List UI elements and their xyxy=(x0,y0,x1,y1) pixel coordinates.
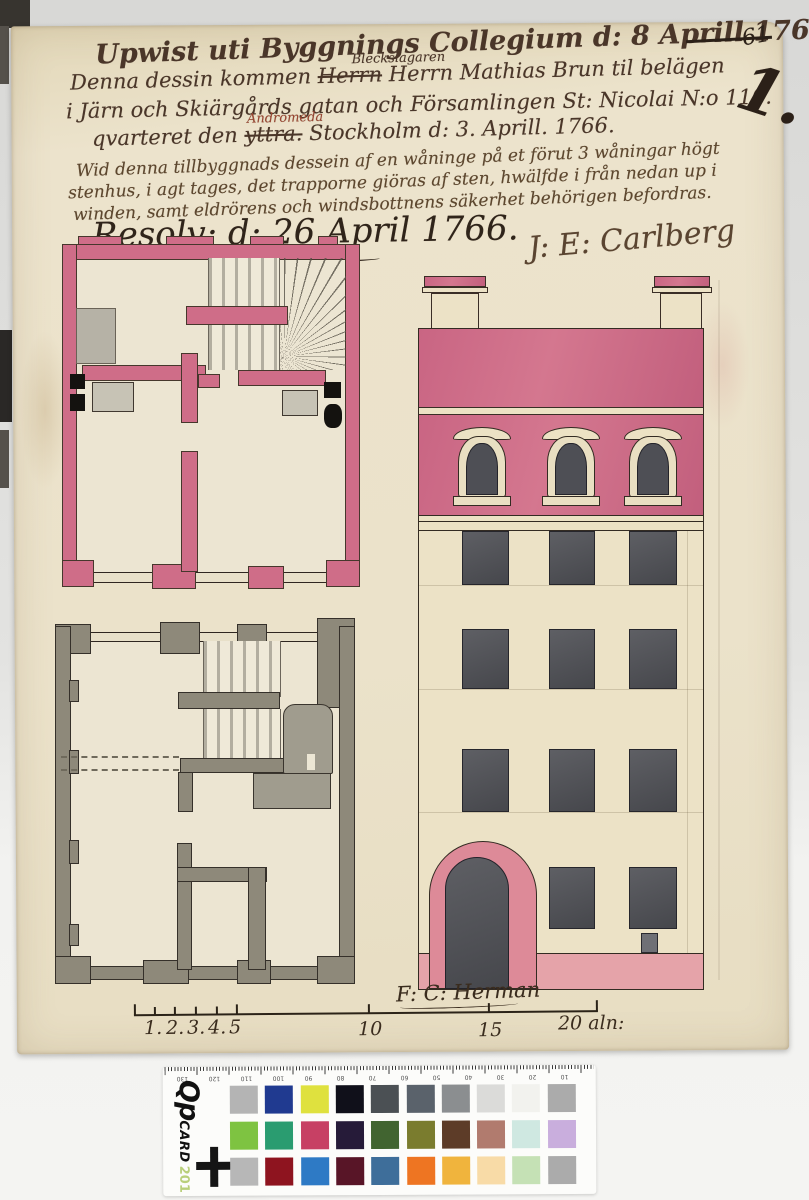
arched-window xyxy=(547,427,595,509)
line2-inserted-word: Bleckslagaren xyxy=(351,50,445,67)
chimney-cap xyxy=(654,276,710,287)
tile-stove xyxy=(282,390,318,416)
scale-baseline xyxy=(134,1010,598,1016)
facade-elevation xyxy=(412,276,708,988)
pilaster xyxy=(248,566,284,589)
exterior-wall xyxy=(345,244,360,576)
stair-flight xyxy=(203,641,281,697)
scale-tick xyxy=(368,1004,370,1013)
arched-window xyxy=(458,427,506,509)
cornice xyxy=(419,515,703,522)
qpcard-patch xyxy=(477,1120,505,1148)
qpcard-patch xyxy=(477,1084,505,1112)
scale-tick xyxy=(195,1007,197,1015)
facade-wall-line xyxy=(66,572,356,583)
window xyxy=(549,749,595,812)
qpcard-patch xyxy=(406,1085,434,1113)
flue-mark xyxy=(324,382,341,398)
scan-edge-mark xyxy=(0,26,9,84)
flue-mark xyxy=(70,394,85,411)
qpcard-patch xyxy=(230,1158,258,1186)
stair-flight xyxy=(203,709,281,759)
guide-line xyxy=(687,531,688,989)
scale-tick xyxy=(596,1000,598,1011)
window xyxy=(462,749,509,812)
window-sill xyxy=(453,496,511,506)
qpcard-patch xyxy=(265,1121,293,1149)
ruler-number: 20 xyxy=(529,1073,537,1080)
scale-tick xyxy=(154,1007,156,1015)
scale-label: 4. xyxy=(208,1016,226,1038)
window xyxy=(629,867,677,929)
pilaster xyxy=(317,956,355,984)
vaulted-chamber xyxy=(253,773,331,809)
new-storey-band xyxy=(419,329,703,407)
scale-bar: 1.2.3.4.5 10 15 20 aln: xyxy=(130,996,650,1045)
qpcard-patch xyxy=(547,1084,575,1112)
winder-stair-fan xyxy=(280,258,346,370)
ruler-number: 30 xyxy=(497,1073,505,1080)
stair-wall xyxy=(238,370,326,386)
ruler-number: 120 xyxy=(209,1075,220,1082)
line4-prefix: qvarteret den xyxy=(92,123,245,151)
chimney-cap xyxy=(424,276,486,287)
qpcard-patch xyxy=(230,1086,258,1114)
line4-inserted-word: Andromeda xyxy=(247,110,324,127)
ruler-number: 100 xyxy=(273,1074,284,1081)
qpcard-patch xyxy=(548,1120,576,1148)
qpcard-patch xyxy=(265,1157,293,1185)
qpcard-logo-qp: Qp xyxy=(173,1080,204,1120)
scale-tick xyxy=(216,1007,218,1015)
ruler-number: 70 xyxy=(369,1074,377,1081)
ruler-number: 60 xyxy=(401,1074,409,1081)
paper-crease xyxy=(718,280,720,980)
qpcard-logo-number: 201 xyxy=(176,1166,191,1193)
qpcard-patch xyxy=(371,1085,399,1113)
qpcard-patch xyxy=(230,1122,258,1150)
qpcard-patch xyxy=(477,1156,505,1184)
pilaster xyxy=(55,956,91,984)
qpcard-patch xyxy=(512,1084,540,1112)
ruler-number: 40 xyxy=(465,1074,473,1081)
corner-mark: 61 xyxy=(740,22,772,51)
qpcard-patch xyxy=(442,1121,470,1149)
window xyxy=(629,531,677,585)
flue-mark xyxy=(70,374,85,389)
chamber-opening xyxy=(307,754,315,770)
scan-edge-mark xyxy=(0,330,12,422)
flue-mark xyxy=(324,404,342,428)
ruler-number: 90 xyxy=(305,1074,313,1081)
pilaster xyxy=(62,560,94,587)
window xyxy=(629,629,677,689)
window-sill xyxy=(624,496,682,506)
qpcard-patch xyxy=(371,1121,399,1149)
ruler-number: 10 xyxy=(561,1073,569,1080)
wall-nib xyxy=(69,840,79,864)
interior-wall xyxy=(181,451,198,572)
scale-tick xyxy=(236,1004,238,1014)
qpcard-logo-card: CARD xyxy=(176,1120,191,1162)
qpcard-patch xyxy=(406,1121,434,1149)
qpcard-patch xyxy=(336,1121,364,1149)
window xyxy=(629,749,677,812)
scale-tick xyxy=(488,1003,490,1012)
ground-floor-plan xyxy=(55,616,355,998)
scale-label: 3. xyxy=(187,1017,205,1039)
qpcard-patch xyxy=(336,1157,364,1185)
stair-landing-wall xyxy=(178,692,280,709)
qpcard-patch xyxy=(513,1156,541,1184)
facade-wall xyxy=(418,328,704,990)
scale-tick xyxy=(174,1007,176,1015)
chimney-shaft xyxy=(431,293,479,331)
window xyxy=(549,531,595,585)
window xyxy=(549,629,595,689)
qpcard-patch xyxy=(265,1085,293,1113)
arched-window xyxy=(629,427,677,509)
scanned-document: Upwist uti Byggnings Collegium d: 8 Apri… xyxy=(0,0,809,1200)
entrance-door xyxy=(445,857,509,989)
pilaster xyxy=(160,622,200,654)
window xyxy=(549,867,595,929)
scale-label-20-aln: 20 aln: xyxy=(558,1012,624,1035)
scan-corner-mark xyxy=(0,0,30,28)
qpcard-logo: QpCARD201 xyxy=(173,1080,205,1193)
dashed-line xyxy=(61,756,179,758)
qpcard-patch xyxy=(336,1085,364,1113)
tile-stove xyxy=(92,382,134,412)
exterior-wall xyxy=(339,626,355,980)
guide-line xyxy=(419,812,703,813)
ruler-number: 110 xyxy=(241,1075,252,1082)
scale-label: 5 xyxy=(229,1016,241,1038)
string-course xyxy=(419,407,703,415)
qpcard-patch xyxy=(300,1085,328,1113)
qpcard-patch xyxy=(442,1085,470,1113)
window xyxy=(462,629,509,689)
boot-scraper-block xyxy=(641,933,658,953)
interior-wall xyxy=(248,867,266,970)
guide-line xyxy=(419,585,703,586)
qpcard-patch xyxy=(371,1157,399,1185)
interior-wall xyxy=(198,374,220,388)
stair-wall xyxy=(180,758,287,773)
interior-wall xyxy=(177,843,192,970)
scale-tick xyxy=(134,1004,136,1015)
pilaster xyxy=(326,560,360,587)
scale-label-15: 15 xyxy=(478,1019,502,1041)
upper-floor-plan xyxy=(62,236,360,592)
wall-nib xyxy=(69,924,79,946)
window-glass xyxy=(466,443,498,495)
interior-wall xyxy=(181,353,198,423)
qpcard-patch xyxy=(407,1157,435,1185)
ruler-number: 50 xyxy=(433,1074,441,1081)
scale-label: 2. xyxy=(166,1017,184,1039)
ruler-number: 80 xyxy=(337,1074,345,1081)
scale-label: 1. xyxy=(144,1017,162,1039)
registration-cross xyxy=(210,1147,218,1187)
dashed-line xyxy=(61,769,179,771)
wall-nib xyxy=(69,680,79,702)
qpcard-color-target: 130120110100908070605040302010 QpCARD201 xyxy=(163,1065,597,1196)
window xyxy=(462,531,509,585)
cornice xyxy=(419,522,703,531)
guide-line xyxy=(419,689,703,690)
stove-block xyxy=(76,308,116,364)
qpcard-patch xyxy=(301,1157,329,1185)
qpcard-patch xyxy=(548,1156,576,1184)
qpcard-patch xyxy=(442,1157,470,1185)
scan-edge-mark xyxy=(0,430,9,488)
window-glass xyxy=(555,443,587,495)
scale-label-10: 10 xyxy=(358,1018,382,1040)
qpcard-patch xyxy=(301,1121,329,1149)
stair-landing-wall xyxy=(186,306,288,325)
interior-wall xyxy=(178,772,193,812)
window-sill xyxy=(542,496,600,506)
chimney-shaft xyxy=(660,293,702,331)
exterior-wall xyxy=(55,966,355,980)
window-glass xyxy=(637,443,669,495)
qpcard-patch xyxy=(512,1120,540,1148)
